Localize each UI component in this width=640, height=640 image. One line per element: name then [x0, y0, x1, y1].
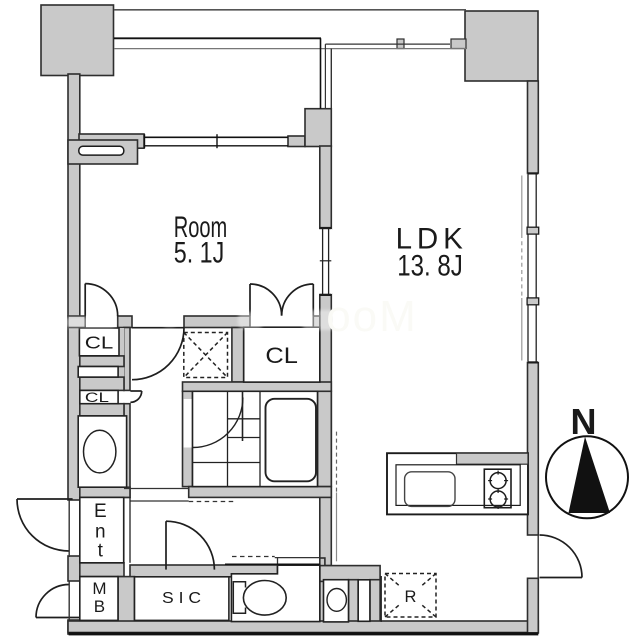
svg-text:S I C: S I C	[162, 590, 201, 607]
svg-text:R: R	[405, 588, 417, 606]
svg-text:13. 8J: 13. 8J	[397, 250, 463, 283]
svg-text:ooM: ooM	[326, 292, 418, 341]
svg-text:CL: CL	[85, 390, 110, 405]
svg-text:M: M	[92, 579, 106, 598]
svg-text:E: E	[94, 501, 107, 522]
svg-text:t: t	[98, 541, 104, 562]
svg-text:5. 1J: 5. 1J	[174, 237, 225, 270]
svg-text:CL: CL	[85, 332, 114, 352]
svg-text:n: n	[95, 522, 106, 543]
svg-text:CL: CL	[265, 343, 298, 368]
svg-text:N: N	[571, 401, 597, 442]
svg-text:B: B	[94, 597, 105, 616]
